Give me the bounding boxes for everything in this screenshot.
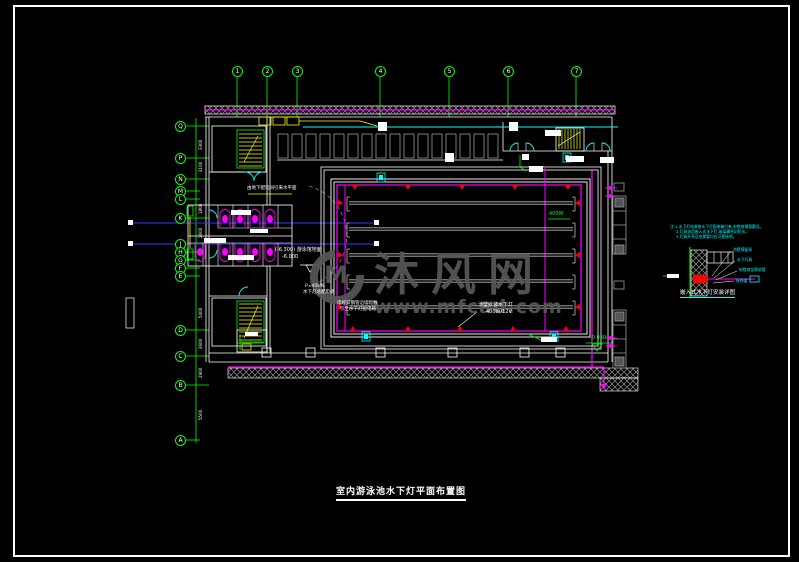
grid-bubble-left-C: C xyxy=(175,351,186,362)
watermark: M 沐风网 www.mfcad.com xyxy=(298,238,588,338)
grid-bubble-left-L: L xyxy=(175,194,186,205)
grid-bubble-left-A: A xyxy=(175,435,186,446)
dimension-text: 2900 xyxy=(199,368,204,378)
dimension-text: 2600 xyxy=(199,339,204,349)
riser-note: 由地下配电间引来水平面 xyxy=(247,186,297,191)
deck-elevation: -0.030 xyxy=(590,336,606,342)
dimension-text: 1800 xyxy=(199,204,204,214)
double-door-icon xyxy=(510,143,610,151)
grid-bubble-left-E: E xyxy=(175,271,186,282)
detail-note-3: 3.灯具外壳及金属管均应可靠接地。 xyxy=(676,235,737,239)
pool-floor-elevation: (-6.300) 游泳馆地面 xyxy=(275,248,322,254)
grid-bubble-top-2: 2 xyxy=(262,66,273,77)
grid-bubble-top-6: 6 xyxy=(503,66,514,77)
grid-bubble-left-N: N xyxy=(175,174,186,185)
dimension-text: 5500 xyxy=(199,410,204,420)
watermark-site-name: 沐风网 xyxy=(374,238,545,303)
grid-bubble-top-1: 1 xyxy=(232,66,243,77)
underwater-light-note: 池壁嵌装水下灯 xyxy=(478,303,513,309)
pump-room xyxy=(237,330,267,352)
detail-label-niche: 池壁预留洞 xyxy=(733,248,752,252)
panel-name: 水下灯总配电箱 xyxy=(303,290,335,295)
locker-row xyxy=(278,134,498,158)
detail-light-fixture xyxy=(693,275,707,283)
grid-bubble-left-B: B xyxy=(175,380,186,391)
detail-label-lamp: 水下灯具 xyxy=(737,258,752,262)
dimension-text: 2100 xyxy=(199,162,204,172)
right-wall-blocks xyxy=(613,183,626,368)
dimension-text: 5400 xyxy=(199,308,204,318)
dimension-text: 2600 xyxy=(199,228,204,238)
grid-bubble-left-P: P xyxy=(175,153,186,164)
grid-bubble-top-3: 3 xyxy=(292,66,303,77)
drawing-title: 室内游泳池水下灯平面布置图 xyxy=(336,484,466,501)
underwater-light-spec: 400W/12V xyxy=(486,310,512,316)
dimension-text: 3300 xyxy=(199,140,204,150)
cad-drawing-canvas: M 沐风网 www.mfcad.com 室内游泳池水下灯平面布置图 嵌入式水下灯… xyxy=(0,0,799,562)
detail-label-conduit: 电缆穿金属软管 xyxy=(739,268,766,272)
pool-floor-elevation-value: -6.000 xyxy=(282,255,298,261)
stairwell-bottom-left xyxy=(212,298,266,346)
grid-bubble-top-7: 7 xyxy=(571,66,582,77)
grid-bubble-left-D: D xyxy=(175,325,186,336)
detail-label-box: 接线盒 xyxy=(736,279,747,283)
grid-bubble-top-5: 5 xyxy=(444,66,455,77)
cable-note-2: 引至水下灯配电箱 xyxy=(340,307,376,312)
panel-power: P=40kW xyxy=(305,284,324,289)
stairwell-top-left xyxy=(212,126,266,172)
watermark-logo-letter: M xyxy=(324,261,348,289)
lamp-wattage: 400W xyxy=(549,212,564,218)
grid-bubble-top-4: 4 xyxy=(375,66,386,77)
cable-note-1: 电缆穿钢管沿墙暗敷 xyxy=(337,301,378,306)
grid-bubble-left-K: K xyxy=(175,213,186,224)
grid-bubble-left-Q: Q xyxy=(175,121,186,132)
watermark-site-url: www.mfcad.com xyxy=(374,296,563,318)
detail-drawing-title: 嵌入式水下灯安装详图 xyxy=(680,288,735,298)
